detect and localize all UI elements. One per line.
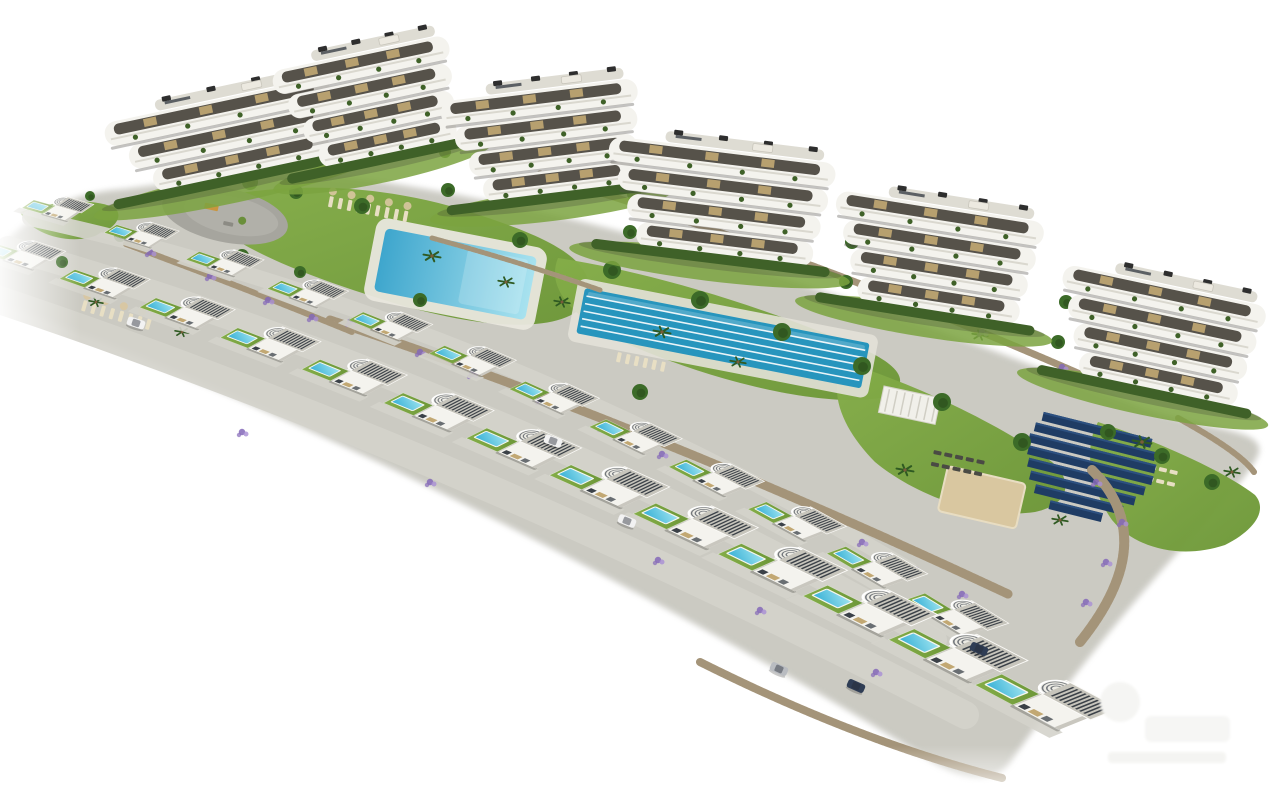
soft-edge-fade-left: [0, 140, 80, 540]
aerial-render: [0, 0, 1280, 800]
soft-edge-fade-bottom: [0, 745, 1280, 800]
render-canvas: [0, 0, 1280, 800]
